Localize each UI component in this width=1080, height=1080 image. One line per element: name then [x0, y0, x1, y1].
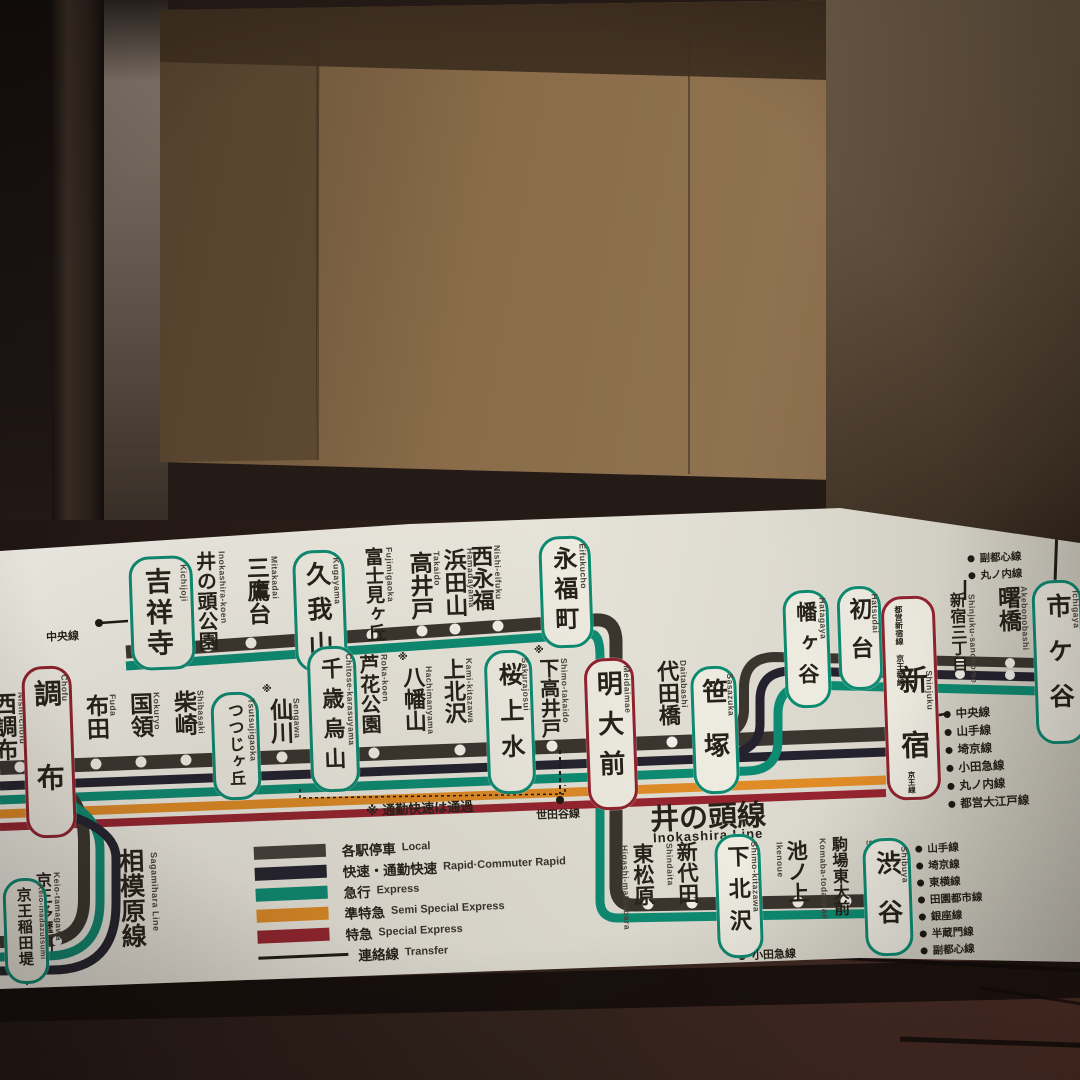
keio-line-label: 京王線: [906, 770, 918, 793]
station-romaji: Kichijoji: [178, 564, 189, 602]
legend-label-jp: 急行: [343, 880, 371, 901]
transfer-dot: [943, 710, 950, 717]
setagaya-transfer-dot: [556, 796, 564, 804]
transfer-line-label: 丸ノ内線: [959, 775, 1006, 793]
shinjuku-transfer-list: 中央線 山手線 埼京線 小田急線 丸ノ内線 都営大江戸線: [943, 702, 1030, 814]
station-romaji: Fuda: [108, 694, 119, 717]
station-romaji: Chofu: [59, 674, 70, 701]
legend-swatch-semi-special: [256, 907, 328, 923]
transfer-dot: [946, 764, 953, 771]
box-crease: [316, 12, 319, 460]
station-box-meidaimae: 明大前 Meidaimae: [583, 657, 638, 811]
chuo-line-label: 中央線: [46, 627, 80, 644]
legend-label-en: Semi Special Express: [391, 899, 505, 916]
station-name: 高井戸: [407, 551, 432, 621]
station-romaji: Kokuryo: [151, 692, 162, 730]
station-name: つつじヶ丘: [224, 702, 243, 788]
legend-label-en: Transfer: [405, 944, 449, 958]
transfer-line-label: 田園都市線: [930, 889, 983, 907]
sagamihara-heading-jp: 相模原線: [116, 848, 144, 949]
station-romaji: Shibasaki: [195, 690, 207, 735]
station-name: 浜田山: [441, 548, 466, 618]
station-name: 三鷹台: [244, 556, 269, 626]
transfer-line-label: 副都心線: [932, 941, 975, 958]
station-name: 千歳烏山: [319, 657, 345, 778]
transfer-dot: [948, 800, 955, 807]
station-name: 曙橋: [995, 586, 1020, 633]
station-romaji: Mitakadai: [269, 556, 281, 600]
station-box-keio-inadazutsumi: 京王稲田堤 Keio-inadazutsumi: [2, 877, 50, 984]
station-romaji: Hatsudai: [869, 593, 880, 633]
toei-shinjuku-line-label: 都営新宿線: [894, 605, 904, 645]
station-box-chofu: 調布 Chofu: [21, 665, 77, 839]
transfer-line-label: 丸ノ内線: [980, 566, 1023, 583]
transfer-line-label: 埼京線: [928, 856, 960, 873]
legend-swatch-rapid: [254, 865, 326, 881]
pass-mark: ※: [534, 645, 544, 656]
setagaya-line-label: 世田谷線: [536, 805, 581, 823]
station-box-chitose-karasuyama: 千歳烏山 Chitose-karasuyama: [306, 645, 360, 793]
station-romaji: Daitabashi: [678, 660, 690, 708]
legend-label-jp: 各駅停車: [341, 837, 396, 859]
legend-swatch-express: [255, 886, 327, 902]
station-romaji: Roka-koen: [379, 654, 391, 702]
station-box-eifukucho: 永福町 Eifukucho: [538, 535, 594, 649]
station-romaji: Sasazuka: [725, 673, 736, 716]
station-box-kichijoji: 吉祥寺 Kichijoji: [128, 555, 196, 671]
wall-right: [826, 0, 1080, 570]
station-name: 市ケ谷: [1044, 593, 1074, 729]
station-name: 布田: [83, 694, 108, 741]
station-romaji: Shimo-kitazawa: [749, 841, 761, 912]
pass-mark: ※: [262, 684, 272, 695]
transfer-line-label: 東横線: [929, 873, 961, 890]
station-name: 下高井戸: [537, 658, 560, 739]
station-box-sasazuka: 笹塚 Sasazuka: [690, 665, 740, 795]
station-name: 新代田: [675, 841, 698, 905]
transfer-dot: [947, 782, 954, 789]
transfer-line-label: 山手線: [927, 839, 959, 856]
station-box-shibuya: 渋谷 Shibuya: [862, 837, 914, 957]
transfer-dot: [945, 746, 952, 753]
station-name: 西永福: [469, 545, 493, 612]
transfer-line-label: 銀座線: [930, 907, 962, 924]
legend-label-jp: 準特急: [344, 901, 385, 923]
station-romaji: Sengawa: [291, 698, 302, 739]
station-romaji: Chitose-karasuyama: [344, 653, 357, 745]
transfer-dot: [919, 913, 926, 920]
station-name: 初台: [847, 597, 873, 676]
shibuya-transfer-list: 山手線 埼京線 東横線 田園都市線 銀座線 半蔵門線 副都心線: [915, 838, 986, 960]
station-name: 明大前: [595, 670, 625, 791]
station-name: 国領: [127, 692, 152, 739]
transfer-dot: [916, 862, 923, 869]
station-box-tsutsujigaoka: つつじヶ丘 Tsutsujigaoka: [210, 691, 262, 801]
transfer-line-label: 中央線: [955, 704, 990, 722]
station-name: 調布: [31, 679, 65, 848]
transfer-line-label: 半蔵門線: [931, 924, 974, 941]
station-name: 吉祥寺: [141, 567, 171, 661]
station-name: 渋谷: [873, 850, 901, 949]
station-box-hatagaya: 幡ヶ谷 Hatagaya: [782, 589, 832, 709]
legend-label-en: Express: [376, 882, 419, 896]
legend-swatch-special: [257, 928, 329, 944]
chuo-transfer-dot: [95, 619, 103, 627]
station-box-ichigaya: 市ケ谷 Ichigaya: [1031, 579, 1080, 745]
transfer-dot: [918, 896, 925, 903]
station-romaji: Shinjuku: [924, 670, 935, 710]
station-romaji: Meidaimae: [622, 665, 634, 713]
station-name: 永福町: [549, 546, 576, 637]
station-name: 東松原: [631, 843, 654, 907]
transfer-dot: [915, 845, 922, 852]
station-romaji: Eifukucho: [577, 543, 589, 589]
legend-swatch-transfer: [258, 953, 348, 959]
station-name: 桜上水: [495, 662, 523, 771]
station-name: 井の頭公園: [193, 551, 216, 652]
sanchome-transfer-list: 副都心線 丸ノ内線: [967, 549, 1023, 586]
station-romaji: Kugayama: [331, 557, 343, 604]
legend-label-jp: 特急: [345, 922, 373, 943]
legend-label-en: Local: [401, 840, 430, 853]
station-box-sakurajosui: 桜上水 Sakurajosui: [484, 649, 537, 795]
station-romaji: Keio-inadazutsumi: [36, 884, 48, 959]
station-name: 芦花公園: [357, 654, 380, 735]
legend-label-jp: 連絡線: [358, 942, 399, 964]
station-name: 上北沢: [441, 658, 465, 725]
legend-swatch-local: [254, 844, 326, 860]
station-name: 西調布: [0, 692, 16, 762]
transfer-dot: [967, 555, 974, 562]
transfer-line-label: 都営大江戸線: [960, 792, 1030, 812]
station-romaji: Shibuya: [899, 846, 910, 883]
box-crease: [688, 4, 690, 474]
station-name: 仙川: [267, 698, 292, 745]
legend-label-en: Rapid·Commuter Rapid: [443, 855, 566, 872]
transfer-dot: [920, 930, 927, 937]
station-name: 富士見ヶ丘: [362, 547, 384, 643]
wall-trim-plank: [52, 0, 104, 550]
station-name: 新宿三丁目: [947, 592, 966, 673]
transfer-dot: [917, 879, 924, 886]
station-name: 柴崎: [171, 690, 196, 737]
station-name: 駒場東大前: [829, 836, 848, 917]
transfer-line-label: 山手線: [956, 722, 991, 740]
transfer-line-label: 小田急線: [958, 757, 1005, 775]
legend: 各駅停車 Local 快速・通勤快速 Rapid·Commuter Rapid …: [253, 829, 570, 968]
station-romaji: Fujimigaoka: [384, 547, 396, 602]
station-name: 京王稲田堤: [15, 887, 33, 967]
transfer-dot: [920, 947, 927, 954]
station-name: 幡ヶ谷: [794, 601, 818, 695]
station-romaji: Sakurajosui: [520, 657, 532, 711]
legend-label-jp: 快速・通勤快速: [342, 856, 437, 880]
pass-mark: ※: [398, 652, 408, 663]
wall-light-strip: [104, 0, 168, 545]
station-romaji: Tsutsujigaoka: [246, 698, 258, 761]
odakyu-line-label: 小田急線: [752, 945, 797, 963]
transfer-line-label: 埼京線: [957, 740, 992, 758]
station-box-shimokitazawa: 下北沢 Shimo-kitazawa: [714, 833, 764, 959]
station-box-shinjuku: 都営新宿線 京王新線 新宿 Shinjuku 京王線: [880, 595, 941, 801]
station-romaji: Hatagaya: [817, 597, 828, 639]
legend-label-en: Special Express: [378, 922, 463, 938]
transfer-dot: [944, 728, 951, 735]
chuo-transfer-tick: [100, 621, 128, 623]
station-name: 代田橋: [655, 660, 679, 727]
photo-scene: 中央線 吉祥寺 Kichijoji 井の頭公園 Inokashira-koen …: [0, 0, 1080, 1080]
station-box-hatsudai: 初台 Hatsudai: [836, 585, 884, 690]
transfer-dot: [968, 572, 975, 579]
station-romaji: Ichigaya: [1071, 590, 1080, 628]
station-name: 池ノ上: [785, 840, 808, 904]
station-romaji: Nishi-eifuku: [492, 545, 504, 600]
station-name: 八幡山: [401, 666, 425, 733]
station-name: 下北沢: [725, 845, 750, 942]
transfer-line-label: 副都心線: [979, 549, 1022, 566]
